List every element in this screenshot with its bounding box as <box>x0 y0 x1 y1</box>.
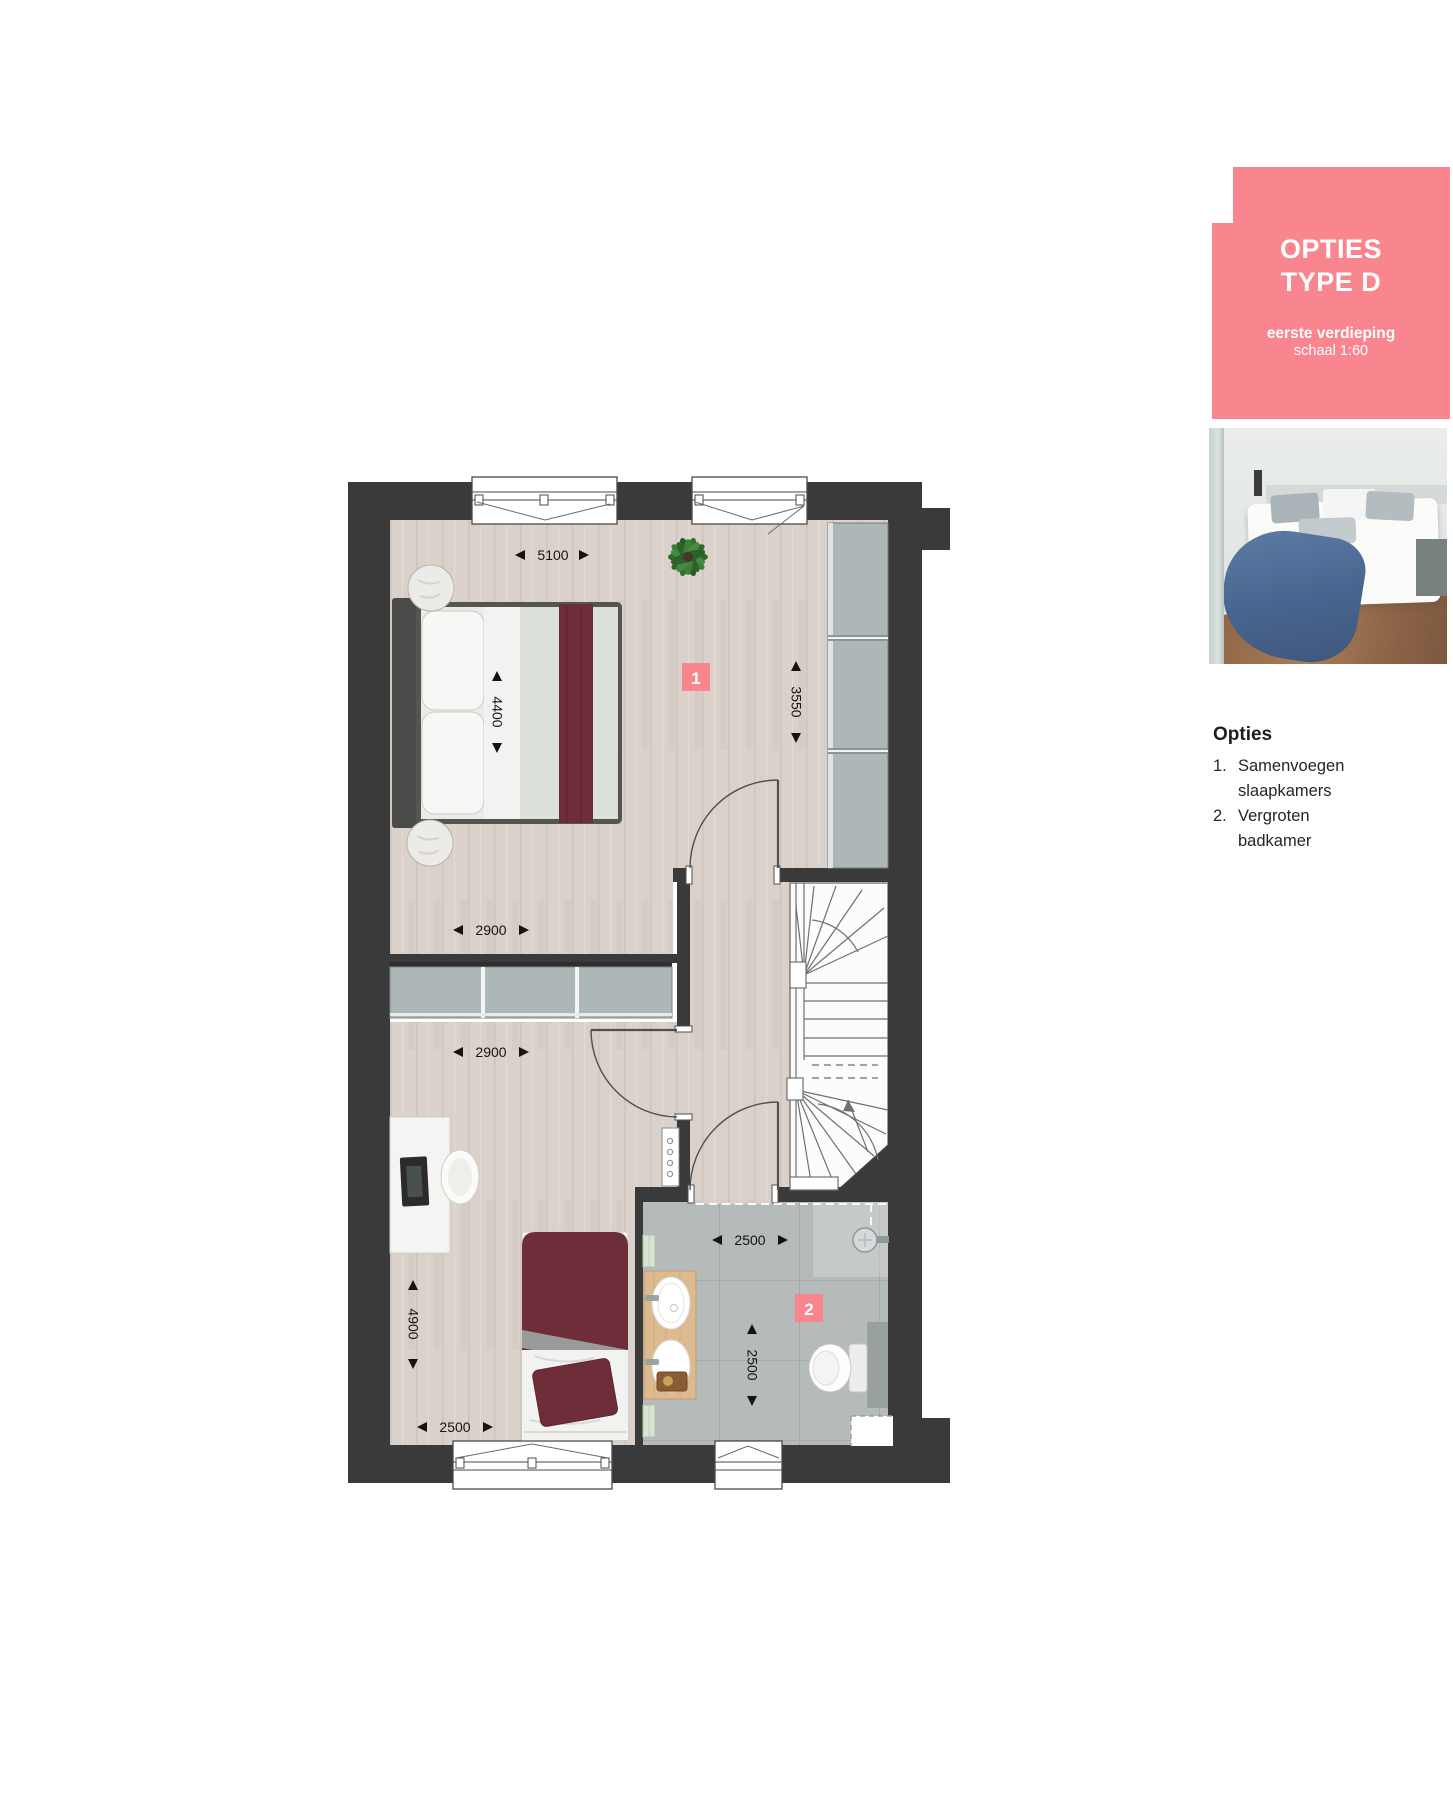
option-marker-1: 1 <box>682 663 710 691</box>
desk-chair <box>441 1150 479 1204</box>
dim-bedroom1-lower-width: 2900 <box>475 922 506 938</box>
bedroom-photo <box>1209 428 1447 664</box>
title-card: OPTIES TYPE D eerste verdieping schaal 1… <box>1212 167 1450 419</box>
option-1-line1: Samenvoegen <box>1238 757 1344 775</box>
options-heading: Opties <box>1213 724 1423 746</box>
dim-bedroom2-bottom: 2500 <box>439 1419 470 1435</box>
photo-door-frame <box>1209 428 1224 664</box>
radiator <box>662 1128 679 1186</box>
window-bathroom <box>715 1441 782 1489</box>
option-marker-2: 2 <box>795 1294 823 1322</box>
faucet-1 <box>645 1295 659 1301</box>
option-2-line1: Vergroten <box>1238 807 1310 825</box>
dim-wardrobe-wall: 3550 <box>789 686 805 717</box>
desk <box>390 1117 450 1253</box>
dim-bathroom-width: 2500 <box>734 1232 765 1248</box>
side-table-bottom <box>407 820 453 866</box>
dim-bathroom-depth: 2500 <box>745 1349 761 1380</box>
side-table-top <box>408 565 454 611</box>
option-1-number: 1. <box>1213 754 1238 804</box>
options-panel: Opties 1. Samenvoegen slaapkamers 2. Ver… <box>1213 724 1423 854</box>
single-bed <box>522 1232 628 1440</box>
option-item-1: 1. Samenvoegen slaapkamers <box>1213 754 1423 804</box>
towel-bottom <box>643 1405 655 1437</box>
photo-pillow <box>1365 490 1414 521</box>
wardrobe <box>828 523 888 868</box>
faucet-2 <box>645 1359 659 1365</box>
window-bedroom1-left <box>472 477 617 524</box>
option-2-line2: badkamer <box>1238 832 1311 850</box>
dim-bedroom1-width: 5100 <box>537 547 568 563</box>
towel-top <box>643 1235 655 1267</box>
photo-nightstand <box>1416 539 1447 596</box>
card-title-line2: TYPE D <box>1212 266 1450 299</box>
photo-lamp <box>1254 470 1262 496</box>
window-bedroom2 <box>453 1441 612 1489</box>
title-card-notch <box>1233 167 1450 223</box>
card-subtitle-floor: eerste verdieping <box>1212 325 1450 343</box>
closet <box>390 962 672 1018</box>
svg-text:1: 1 <box>691 669 700 688</box>
dim-bedroom2-width: 2900 <box>475 1044 506 1060</box>
wall-notch <box>851 1416 893 1446</box>
option-2-number: 2. <box>1213 804 1238 854</box>
dim-bed-length: 4400 <box>490 696 506 727</box>
option-1-line2: slaapkamers <box>1238 782 1332 800</box>
double-bed <box>392 598 622 828</box>
option-item-2: 2. Vergroten badkamer <box>1213 804 1423 854</box>
svg-text:2: 2 <box>804 1300 813 1319</box>
card-title-line1: OPTIES <box>1212 233 1450 266</box>
dim-bedroom2-depth: 4900 <box>406 1308 422 1339</box>
card-subtitle-scale: schaal 1:60 <box>1212 343 1450 360</box>
vanity <box>644 1271 696 1399</box>
